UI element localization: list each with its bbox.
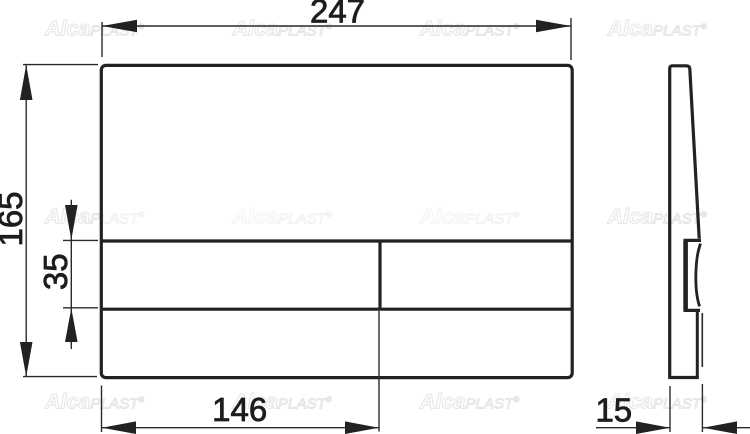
- svg-text:165: 165: [0, 191, 29, 246]
- svg-text:146: 146: [212, 391, 267, 428]
- svg-text:247: 247: [310, 0, 365, 30]
- svg-text:35: 35: [37, 253, 74, 290]
- svg-text:15: 15: [595, 392, 632, 429]
